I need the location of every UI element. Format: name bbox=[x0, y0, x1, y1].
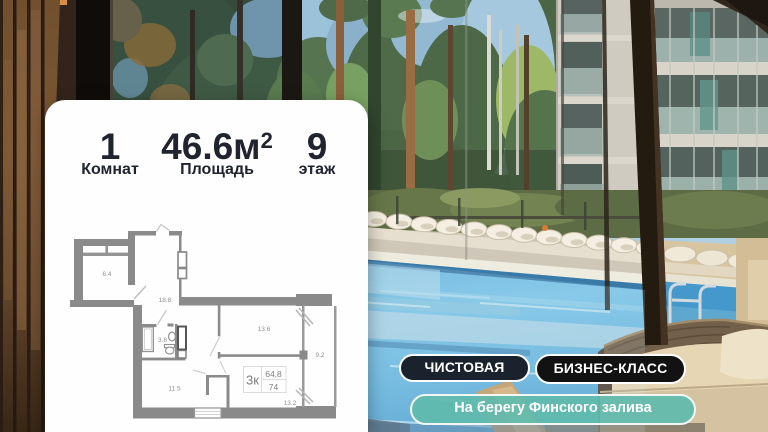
svg-text:11.5: 11.5 bbox=[168, 386, 181, 393]
svg-text:6.4: 6.4 bbox=[102, 271, 111, 278]
svg-text:3к: 3к bbox=[246, 373, 259, 388]
svg-text:74: 74 bbox=[269, 382, 279, 392]
svg-text:9.2: 9.2 bbox=[315, 352, 324, 359]
svg-text:18.8: 18.8 bbox=[159, 297, 172, 304]
svg-text:13.2: 13.2 bbox=[284, 400, 297, 407]
svg-text:13.6: 13.6 bbox=[258, 326, 271, 333]
svg-text:3.8: 3.8 bbox=[158, 337, 167, 344]
svg-text:64,8: 64,8 bbox=[265, 369, 282, 379]
